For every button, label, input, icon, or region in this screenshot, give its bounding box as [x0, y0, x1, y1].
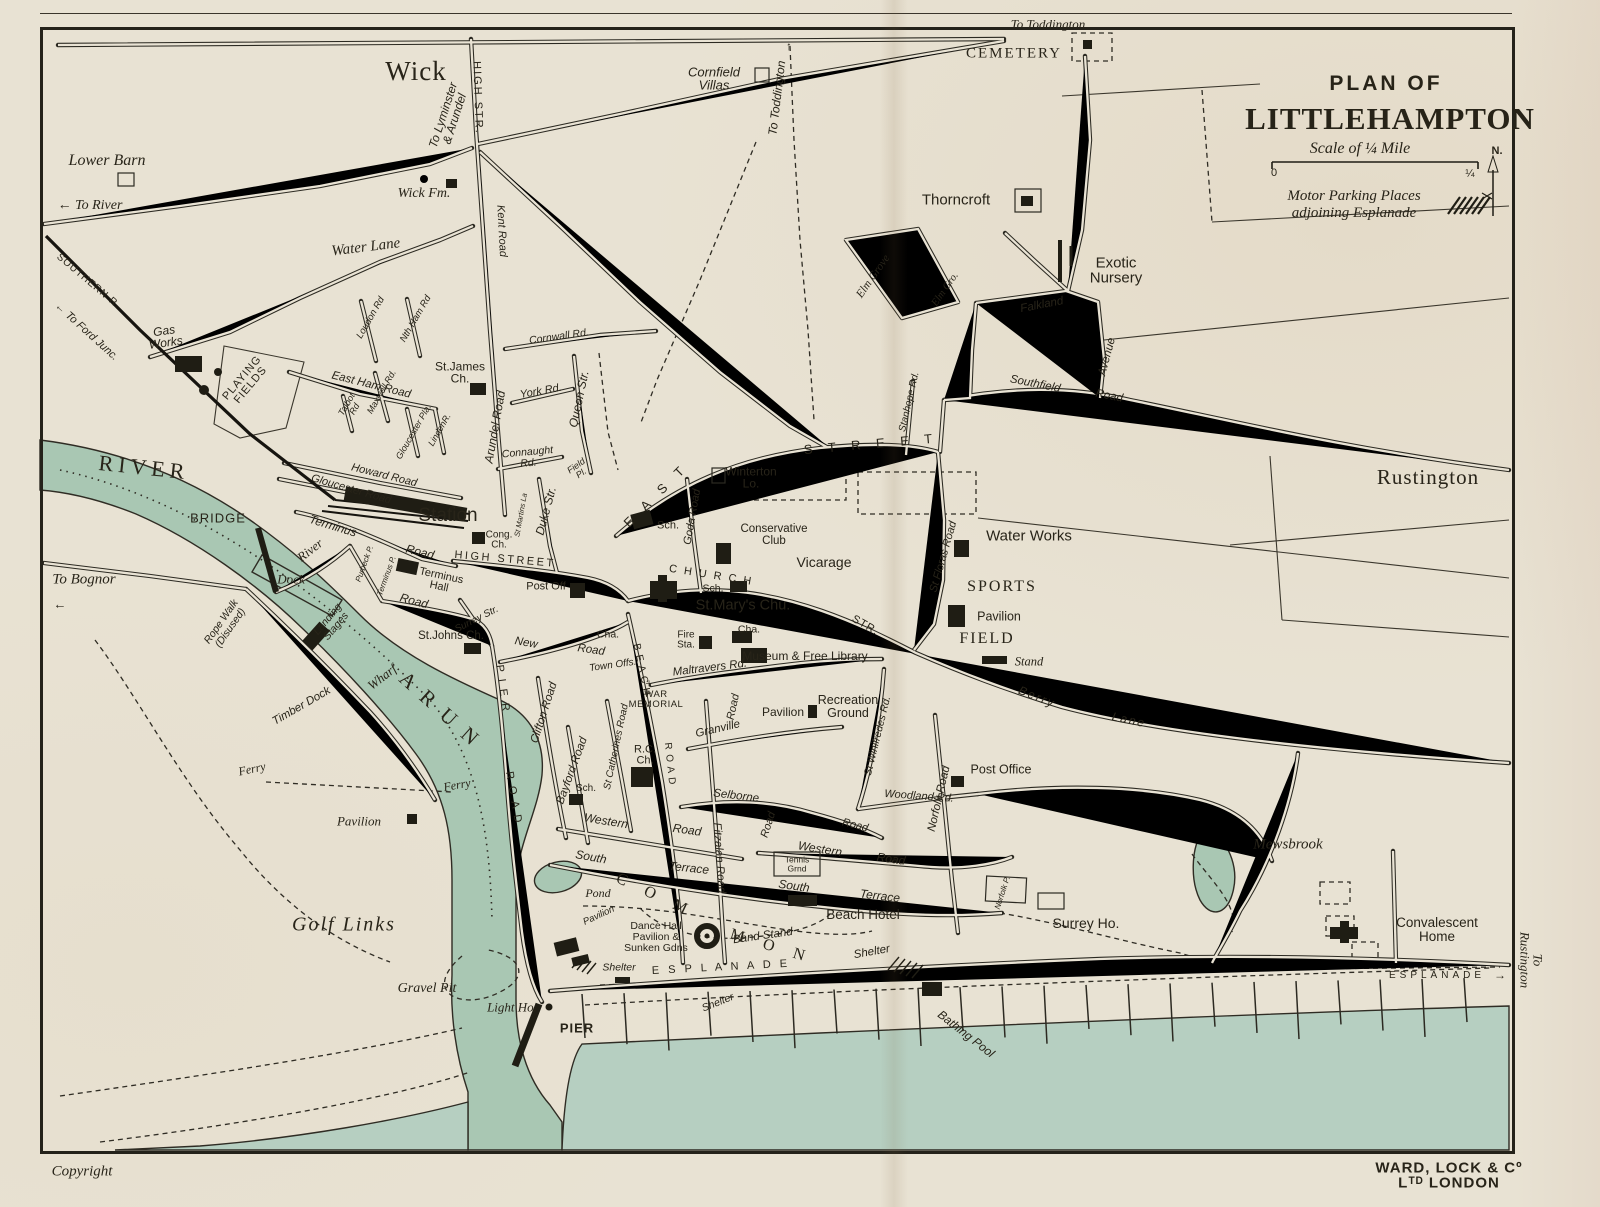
map-label: Fire Sta.: [677, 631, 695, 652]
map-label: St.James Ch.: [435, 361, 485, 386]
map-label: Conservative Club: [740, 524, 807, 548]
map-label: To Toddington: [1011, 17, 1086, 30]
map-label: Exotic Nursery: [1090, 256, 1143, 287]
map-label: Pond: [585, 887, 610, 899]
map-label: St.Mary's Chu.: [696, 599, 791, 614]
map-label: Cha.: [597, 630, 619, 641]
map-label: ←: [54, 597, 67, 610]
map-label: To Bognor: [52, 572, 115, 587]
map-label: Station: [418, 506, 477, 526]
map-label: Sch.: [576, 784, 596, 794]
map-label: Water Works: [986, 528, 1072, 543]
map-label: Pavilion: [762, 706, 804, 718]
scale-label: Scale of ¼ Mile: [1310, 140, 1410, 158]
map-label: ← To River: [58, 199, 123, 213]
map-label: Beach Hotel: [826, 908, 900, 922]
map-label: Post Office: [971, 764, 1032, 777]
map-label: Dance Hall Pavilion & Sunken Gdns: [624, 921, 688, 953]
scale-start: 0: [1271, 167, 1277, 179]
map-label: ESPLANADE: [1389, 971, 1485, 981]
map-page: PLAN OF LITTLEHAMPTON Scale of ¼ Mile 0 …: [0, 0, 1600, 1207]
page-title: LITTLEHAMPTON: [1245, 101, 1535, 137]
map-label: Kent Road: [494, 205, 508, 258]
map-label: Wick: [385, 58, 446, 86]
map-label: FIELD: [959, 631, 1014, 647]
map-label: Museum & Free Library: [742, 650, 867, 662]
map-label: Connaught Rd.: [501, 445, 554, 471]
scale-end: ¼: [1465, 168, 1474, 180]
map-label: Tennis Grnd: [785, 855, 810, 873]
parking-note: Motor Parking Places adjoining Esplanade: [1287, 188, 1420, 222]
map-label: Recreation Ground: [818, 694, 878, 720]
title-kicker: PLAN OF: [1329, 72, 1442, 96]
map-label: St.Johns Ch.: [418, 631, 484, 643]
map-label: Dock: [277, 572, 304, 585]
map-label: Convalescent Home: [1396, 916, 1478, 944]
map-label: To Rustington: [1518, 926, 1545, 995]
map-label: Thorncroft: [922, 192, 990, 207]
map-label: Golf Links: [292, 915, 396, 936]
map-label: Mewsbrook: [1253, 837, 1322, 852]
map-label: Sch.: [702, 584, 723, 595]
map-label: Stand: [1015, 656, 1043, 669]
copyright-note: Copyright: [52, 1164, 113, 1179]
map-label: BRIDGE: [190, 511, 246, 524]
map-label: HIGH STR.: [470, 61, 484, 135]
map-label: CEMETERY: [966, 46, 1062, 61]
map-label: Vicarage: [796, 555, 851, 569]
map-label: WAR MEMORIAL: [629, 690, 684, 710]
map-label: Cha.: [738, 625, 760, 636]
map-label: Cornfield Villas: [688, 66, 740, 93]
map-label: Wick Fm.: [398, 187, 451, 201]
map-label: PIER: [560, 1021, 594, 1034]
map-label: Sch.: [657, 520, 679, 531]
map-label: Winterton Lo.: [725, 466, 776, 491]
map-label: Rustington: [1377, 467, 1479, 489]
map-label: Cong. Ch.: [486, 531, 513, 552]
map-label: Light Ho.: [487, 1000, 537, 1013]
map-label: Lower Barn: [69, 153, 146, 169]
map-label: Pavilion: [337, 814, 381, 827]
map-label: Gravel Pit: [398, 982, 457, 996]
publisher-imprint: WARD, LOCK & Cº Lᵀᴰ LONDON: [1374, 1161, 1525, 1192]
map-label: →: [1494, 969, 1506, 981]
map-label: Gas Works: [146, 322, 183, 351]
north-label: N.: [1492, 145, 1503, 157]
map-label: ↑: [786, 40, 792, 52]
outer-rule: [40, 13, 1512, 14]
map-label: R.C. Ch.: [634, 745, 656, 768]
map-label: SPORTS: [967, 579, 1037, 595]
map-label: Shelter: [602, 963, 635, 974]
map-label: Surrey Ho.: [1053, 916, 1120, 930]
map-label: Pavilion: [977, 611, 1021, 624]
map-label: Post Off: [526, 581, 566, 592]
